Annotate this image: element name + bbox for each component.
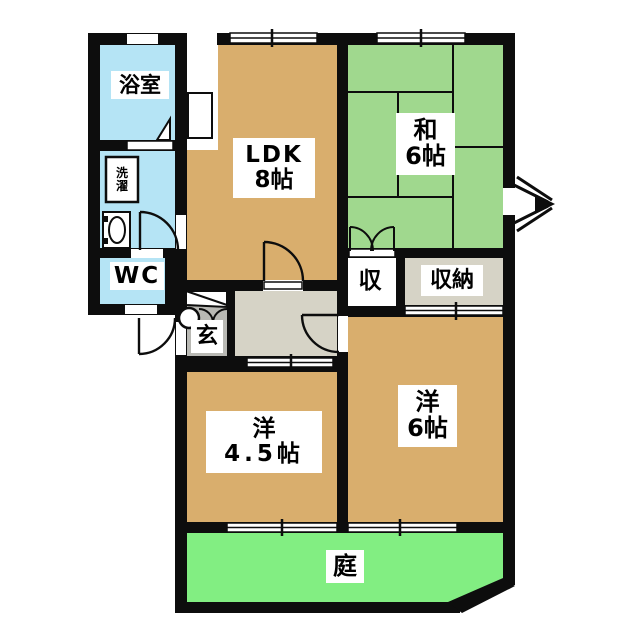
ldk-label-text: LDK: [245, 143, 303, 168]
wc-door-opening: [131, 249, 163, 258]
kitchen-wall-gap: [187, 33, 217, 45]
western45-size-text: 4.5帖: [224, 442, 304, 467]
kitchen-counter: [188, 93, 212, 138]
western6-door-opening: [338, 316, 348, 352]
garden-label: 庭: [326, 550, 364, 583]
washitsu-size-text: 6帖: [405, 144, 446, 170]
closet-small-label-text: 収: [359, 269, 382, 294]
closet-small-label: 収: [350, 266, 390, 296]
floor-plan-drawing: [0, 0, 640, 640]
washitsu-label-text: 和: [414, 118, 438, 144]
ldk-label: LDK 8帖: [233, 138, 315, 198]
bathroom-window: [127, 34, 158, 44]
closet-large-label-text: 収納: [430, 269, 474, 293]
bathroom-label: 浴室: [111, 71, 169, 99]
washitsu-label: 和 6帖: [396, 113, 455, 175]
western45-label-text: 洋: [253, 417, 276, 442]
laundry-label: 洗 濯: [109, 161, 135, 199]
bathroom-door-sill: [127, 141, 173, 150]
garden-label-text: 庭: [333, 554, 357, 580]
western6-size-text: 6帖: [407, 416, 448, 442]
western45-label: 洋 4.5帖: [206, 411, 322, 473]
entrance-label-text: 玄: [196, 325, 218, 349]
laundry-char2: 濯: [116, 180, 128, 193]
closet-large-label: 収納: [421, 265, 483, 296]
entrance-label: 玄: [191, 320, 223, 353]
western6-label: 洋 6帖: [398, 385, 457, 447]
washitsu-side-opening: [503, 188, 515, 215]
shoe-cabinet: [186, 291, 227, 307]
bathroom-label-text: 浴室: [119, 74, 161, 97]
wc-label: WC: [110, 262, 164, 290]
ldk-door-sill: [264, 282, 302, 289]
north-arrow-icon: [512, 176, 557, 232]
floor-plan: 浴室 洗 濯 WC LDK 8帖 和 6帖 収 収納 玄 洋 4.5帖 洋 6帖…: [0, 0, 640, 640]
wc-window: [125, 305, 157, 314]
front-door: [139, 318, 175, 354]
wc-label-text: WC: [114, 264, 160, 289]
washbasin: [103, 212, 130, 248]
western6-label-text: 洋: [416, 390, 440, 416]
ldk-size-text: 8帖: [254, 168, 293, 193]
